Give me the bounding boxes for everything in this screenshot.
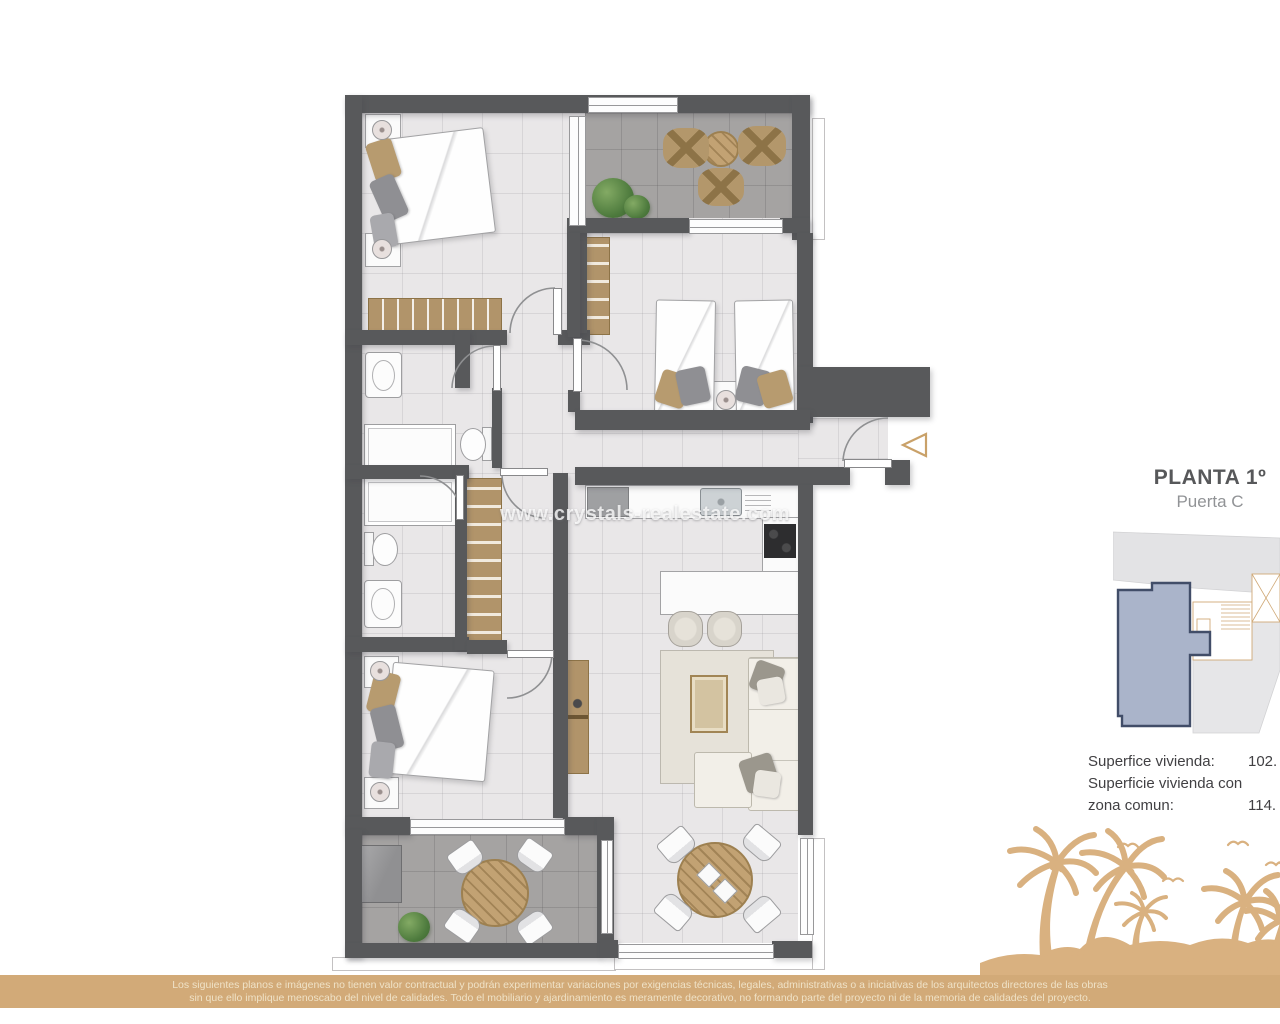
- wall: [345, 637, 469, 652]
- wall: [568, 390, 580, 412]
- tv-unit: [566, 660, 589, 774]
- plant: [624, 195, 650, 219]
- surface-common-label-line2: zona comun:: [1088, 797, 1174, 814]
- palm-trunk: [1040, 865, 1060, 957]
- terrace-chair: [663, 128, 709, 168]
- door-leaf: [456, 475, 464, 520]
- door-leaf: [493, 345, 501, 391]
- storage-box: [356, 845, 402, 903]
- wall: [798, 485, 813, 835]
- watermark: www.crystals-realestate.com: [500, 503, 790, 526]
- hall-wardrobe: [462, 478, 502, 650]
- terrace-railing: [812, 118, 825, 240]
- plant: [398, 912, 430, 942]
- apartment-floorplan: www.crystals-realestate.com: [0, 0, 1000, 1024]
- lamp: [370, 782, 390, 802]
- lamp: [370, 661, 390, 681]
- keyplan-building-diagram: [1113, 520, 1280, 735]
- wall: [797, 367, 930, 417]
- surface-value: 102.: [1248, 753, 1277, 770]
- palm-beach-graphic: [980, 815, 1280, 975]
- entrance-arrow-icon: [903, 434, 926, 456]
- balcony-railing: [332, 957, 616, 971]
- window: [601, 840, 613, 934]
- shower-tray: [364, 478, 456, 526]
- window: [618, 944, 774, 959]
- disclaimer-line2: sin que ello implique menoscabo del nive…: [0, 992, 1280, 1005]
- wall: [345, 330, 507, 345]
- lamp: [372, 120, 392, 140]
- wall: [568, 233, 580, 337]
- bed-pillow: [368, 741, 396, 779]
- wall: [345, 943, 601, 958]
- terrace-chair: [698, 168, 744, 206]
- door-leaf: [573, 338, 582, 392]
- bathroom-sink: [364, 580, 402, 628]
- sofa-pillow: [752, 769, 781, 798]
- lamp: [372, 239, 392, 259]
- terrace-chair: [738, 126, 786, 166]
- door-leaf: [507, 650, 554, 658]
- bathroom-sink: [365, 352, 402, 398]
- floor-title: PLANTA 1º: [1125, 466, 1280, 490]
- wardrobe: [368, 298, 502, 333]
- door-subtitle: Puerta C: [1125, 492, 1280, 512]
- surface-label: Superfice vivienda:: [1088, 753, 1215, 770]
- wall: [467, 640, 507, 654]
- floorplan-page: www.crystals-realestate.com PLANTA 1º Pu…: [0, 0, 1280, 1024]
- cooktop: [764, 524, 796, 558]
- window: [410, 819, 565, 835]
- front-door-leaf: [844, 459, 892, 468]
- disclaimer-bar: Los siguientes planos e imágenes no tien…: [0, 975, 1280, 1008]
- sofa-pillow: [756, 676, 786, 706]
- wall: [575, 410, 810, 430]
- wall: [455, 330, 470, 388]
- wall: [345, 95, 362, 830]
- bar-stool: [668, 611, 703, 647]
- coffee-table: [690, 675, 728, 733]
- wall: [780, 218, 810, 233]
- disclaimer-line1: Los siguientes planos e imágenes no tien…: [0, 979, 1280, 992]
- window: [689, 219, 783, 234]
- surface-common-label-line1: Superficie vivienda con: [1088, 775, 1242, 792]
- door-leaf: [553, 288, 562, 335]
- window: [800, 838, 814, 935]
- wall: [345, 95, 810, 113]
- bar-stool: [707, 611, 742, 647]
- toilet: [460, 428, 486, 461]
- surface-common-value: 114.: [1248, 797, 1276, 814]
- window: [588, 97, 678, 113]
- wall: [345, 830, 362, 957]
- wall: [345, 465, 469, 479]
- toilet: [372, 533, 398, 566]
- wall: [492, 388, 502, 468]
- bathtub: [364, 424, 456, 470]
- wall: [575, 467, 850, 485]
- window: [569, 116, 586, 226]
- lamp: [716, 390, 736, 410]
- door-leaf: [500, 468, 548, 476]
- wall: [772, 941, 812, 958]
- wall: [600, 940, 618, 958]
- kitchen-island: [660, 571, 800, 615]
